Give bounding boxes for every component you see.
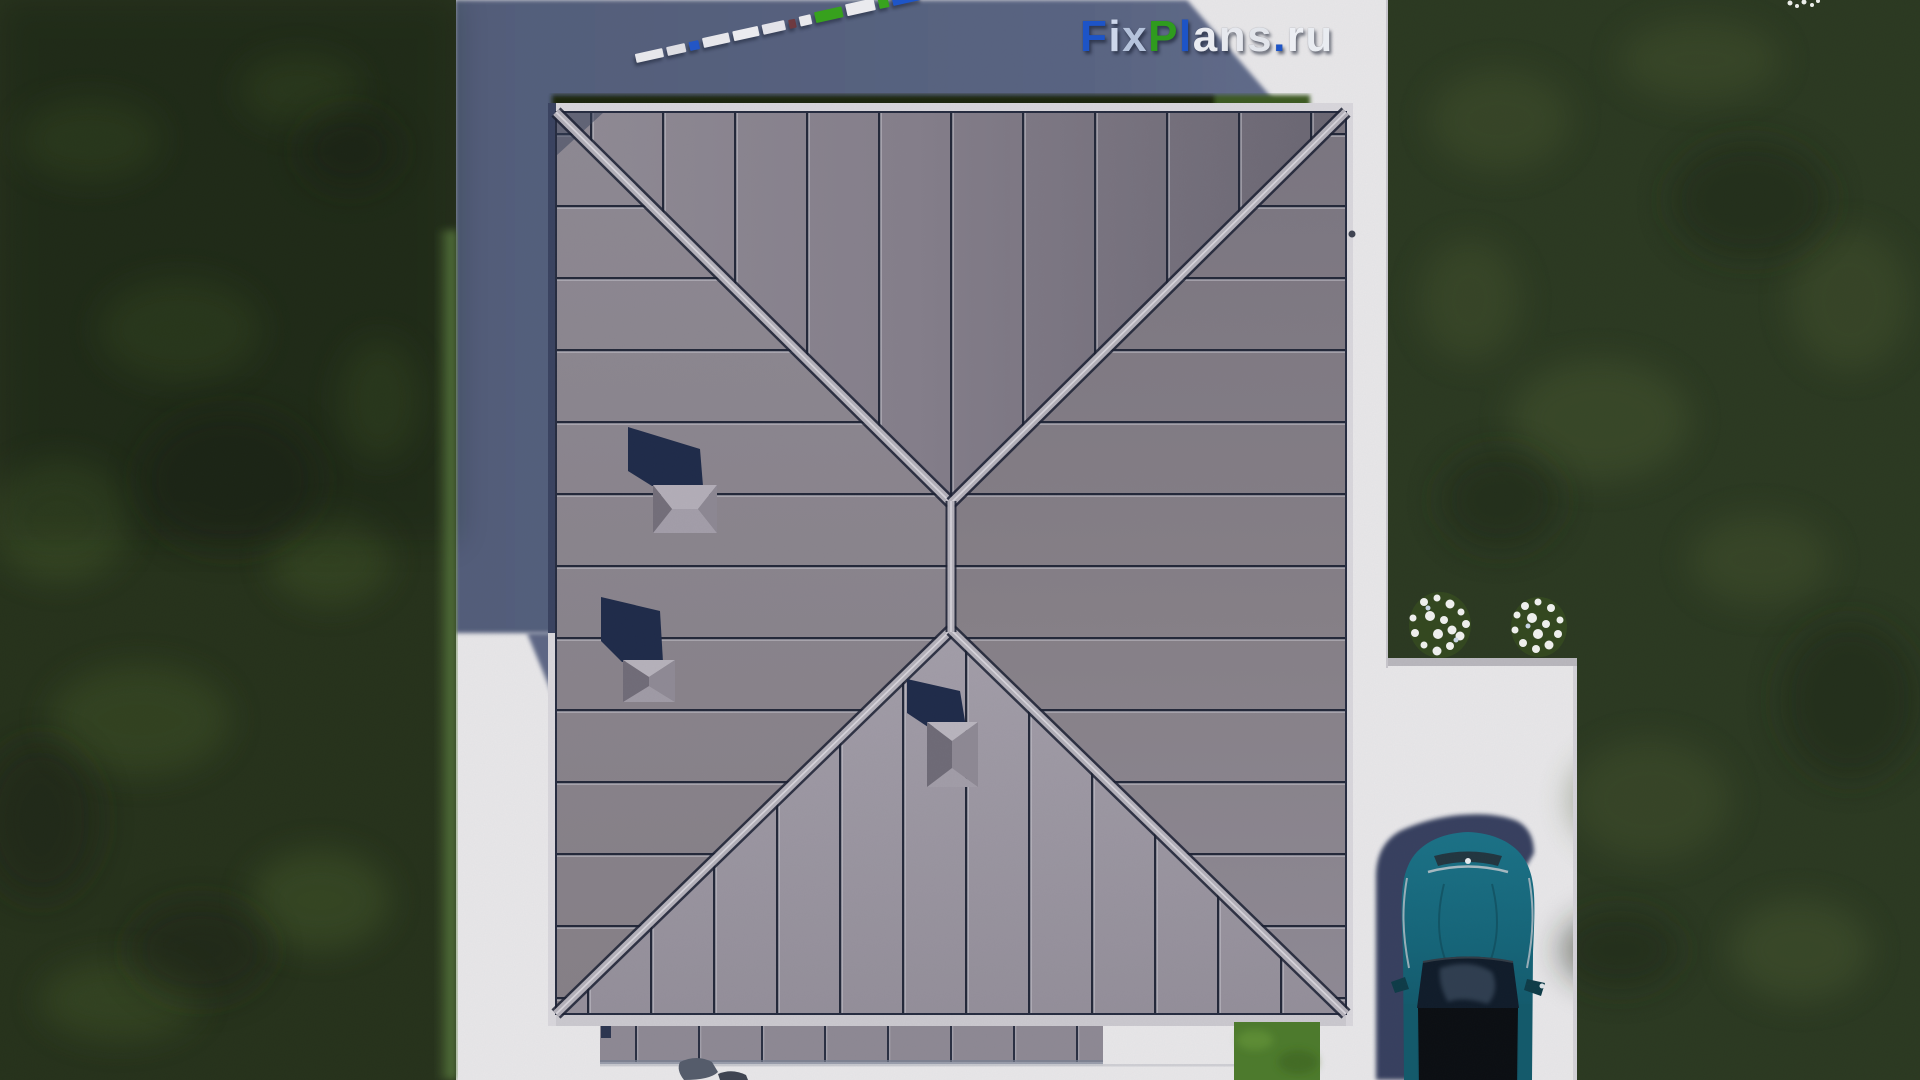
train-block — [702, 32, 731, 48]
train-block — [732, 26, 760, 41]
fixplans-watermark: FixPlans.ru — [1080, 12, 1334, 62]
logo-letter: . — [1273, 12, 1287, 61]
train-block — [666, 43, 686, 56]
train-block — [688, 40, 700, 51]
logo-letter: u — [1305, 12, 1333, 61]
logo-letter: s — [1247, 12, 1273, 61]
train-block — [761, 20, 786, 35]
train-block — [878, 0, 890, 9]
logo-letter: a — [1193, 12, 1219, 61]
train-block — [788, 19, 797, 29]
toy-train-strip — [636, 6, 936, 76]
film-grain — [0, 0, 1920, 1080]
logo-letter: r — [1287, 12, 1306, 61]
logo-letter: n — [1219, 12, 1247, 61]
train-block — [635, 48, 664, 63]
logo-letter: x — [1122, 12, 1148, 61]
logo-letter: P — [1148, 12, 1179, 61]
train-block — [799, 14, 813, 26]
logo-letter: F — [1080, 12, 1108, 61]
site-plan-render: FixPlans.ru — [0, 0, 1920, 1080]
train-block — [845, 0, 876, 16]
logo-letter: i — [1108, 12, 1122, 61]
aerial-view-canvas — [0, 0, 1920, 1080]
train-block — [814, 6, 844, 23]
logo-letter: l — [1179, 12, 1193, 61]
